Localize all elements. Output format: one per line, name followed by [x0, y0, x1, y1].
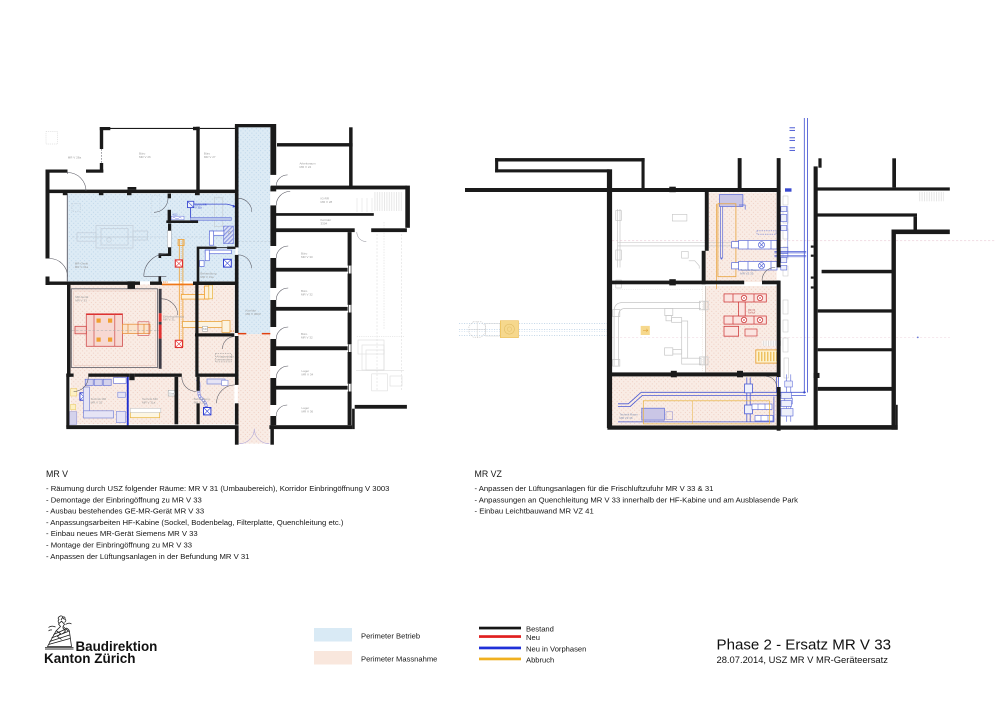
svg-text:- Räumung durch USZ folgender: - Räumung durch USZ folgender Räume: MR …: [46, 484, 389, 493]
svg-text:MR V 36: MR V 36: [302, 410, 314, 414]
svg-text:V 31b: V 31b: [195, 205, 203, 209]
svg-text:MR VZ 36: MR VZ 36: [620, 416, 633, 420]
svg-text:MR V 34: MR V 34: [302, 373, 314, 377]
svg-text:44.1: 44.1: [230, 330, 235, 333]
svg-text:MR V 32: MR V 32: [301, 293, 313, 297]
svg-text:MR V 31a: MR V 31a: [75, 265, 89, 269]
svg-text:- Ausbau bestehendes GE-MR-Ger: - Ausbau bestehendes GE-MR-Gerät MR V 33: [46, 507, 204, 516]
svg-text:MR V 35: MR V 35: [91, 401, 103, 405]
svg-text:MR V 31: MR V 31: [163, 318, 175, 322]
svg-text:Kanton Zürich: Kanton Zürich: [44, 651, 136, 666]
svg-text:MR V 30: MR V 30: [301, 255, 313, 259]
svg-text:Abbruch: Abbruch: [526, 656, 554, 665]
svg-text:MR V 24: MR V 24: [300, 165, 312, 169]
svg-text:MR V 31a: MR V 31a: [142, 401, 156, 405]
svg-text:4010: 4010: [172, 215, 178, 217]
svg-text:Fortluft: Fortluft: [748, 312, 756, 315]
svg-text:MR V 27: MR V 27: [204, 155, 216, 159]
svg-text:44.1: 44.1: [163, 281, 168, 284]
svg-text:Neu in Vorphasen: Neu in Vorphasen: [526, 645, 586, 654]
svg-text:MR V 3003: MR V 3003: [246, 312, 261, 316]
svg-text:MR V 28a: MR V 28a: [68, 156, 82, 160]
svg-text:- Anpassungen an Quenchleitung: - Anpassungen an Quenchleitung MR V 33 i…: [475, 495, 799, 504]
svg-text:MR V 31a: MR V 31a: [200, 275, 214, 279]
svg-text:MR V 28: MR V 28: [321, 200, 333, 204]
svg-text:MR V 26: MR V 26: [139, 155, 151, 159]
svg-text:MR VZ 35: MR VZ 35: [740, 271, 753, 275]
svg-text:MR V 33: MR V 33: [75, 299, 87, 303]
svg-text:Perimeter Massnahme: Perimeter Massnahme: [361, 655, 437, 664]
svg-text:28.07.2014, USZ MR V MR-Geräte: 28.07.2014, USZ MR V MR-Geräteersatz: [717, 654, 889, 665]
svg-text:Neu: Neu: [526, 633, 540, 642]
svg-text:- Einbau neues MR-Gerät Siemen: - Einbau neues MR-Gerät Siemens MR V 33: [46, 529, 198, 538]
svg-text:- Montage der Einbringöffnung: - Montage der Einbringöffnung zu MR V 33: [46, 541, 192, 550]
svg-text:- Anpassen der Lüftungsanlage: - Anpassen der Lüftungsanlagen in der Be…: [46, 552, 249, 561]
svg-text:- Anpassungsarbeiten HF-Kabine: - Anpassungsarbeiten HF-Kabine (Sockel, …: [46, 518, 344, 527]
svg-text:verwenden: verwenden: [216, 358, 231, 362]
svg-text:- Einbau Leichtbauwand MR VZ 4: - Einbau Leichtbauwand MR VZ 41: [475, 507, 594, 516]
svg-text:Phase 2 - Ersatz MR V 33: Phase 2 - Ersatz MR V 33: [717, 637, 892, 654]
svg-text:3304: 3304: [321, 222, 328, 226]
svg-text:- Demontage der Einbringöffnu: - Demontage der Einbringöffnung zu MR V …: [46, 495, 202, 504]
svg-text:MR V 32: MR V 32: [301, 336, 313, 340]
svg-text:Stati: Stati: [169, 391, 175, 395]
svg-text:MR V: MR V: [46, 469, 68, 479]
svg-text:MR V 33: MR V 33: [194, 401, 206, 405]
svg-text:- Anpassen der Lüftungsanlagen: - Anpassen der Lüftungsanlagen für die F…: [475, 484, 714, 493]
svg-text:MR VZ: MR VZ: [748, 310, 756, 312]
svg-text:Perimeter Betrieb: Perimeter Betrieb: [361, 632, 420, 641]
svg-text:MR VZ: MR VZ: [475, 469, 503, 479]
